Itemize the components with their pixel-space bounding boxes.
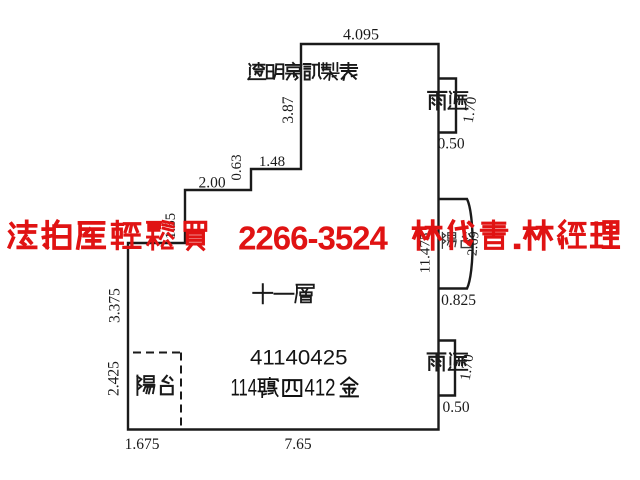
svg-text:2266-3524: 2266-3524 <box>238 220 388 257</box>
svg-text:114: 114 <box>231 375 258 402</box>
svg-text:1.48: 1.48 <box>259 154 285 170</box>
svg-text:2.425: 2.425 <box>106 361 123 396</box>
svg-text:2.00: 2.00 <box>198 175 225 192</box>
svg-text:0.50: 0.50 <box>442 399 469 416</box>
svg-text:3.87: 3.87 <box>280 96 297 123</box>
svg-text:3.375: 3.375 <box>107 288 124 323</box>
svg-text:1.675: 1.675 <box>125 436 160 453</box>
svg-text:0.825: 0.825 <box>441 292 476 309</box>
svg-text:412: 412 <box>305 375 336 402</box>
svg-text:1.70: 1.70 <box>458 353 477 381</box>
svg-text:0.50: 0.50 <box>437 136 464 153</box>
svg-text:0.63: 0.63 <box>229 154 245 180</box>
svg-text:7.65: 7.65 <box>284 436 311 453</box>
svg-text:1.70: 1.70 <box>461 96 480 124</box>
svg-text:41140425: 41140425 <box>250 345 348 370</box>
svg-text:4.095: 4.095 <box>343 27 379 44</box>
